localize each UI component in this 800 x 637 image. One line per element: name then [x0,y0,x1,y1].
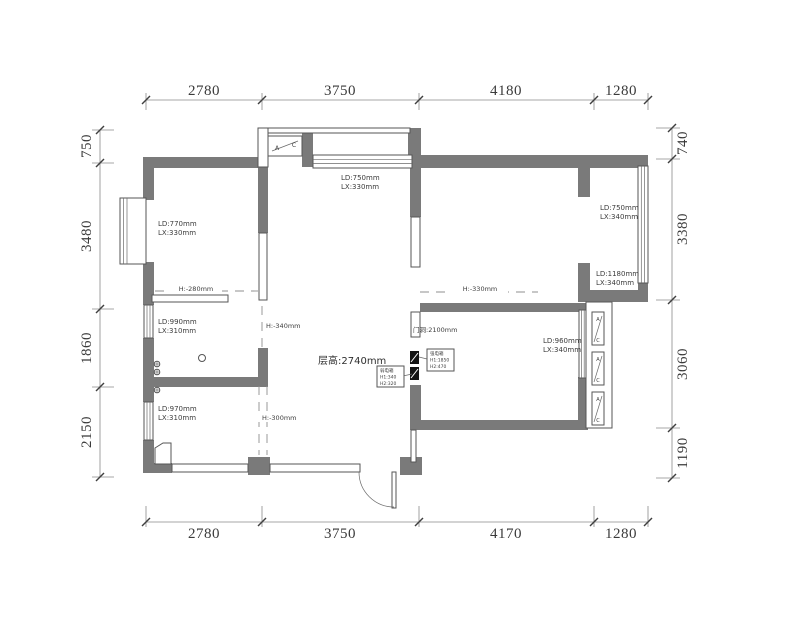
strong-box-h1: H1:1850 [430,358,449,364]
height-label-h330: H:-330mm [463,285,498,293]
ac-unit-3: A C [592,392,604,425]
svg-text:LD:970mm: LD:970mm [158,405,197,413]
electrical-boxes [410,351,419,380]
strong-box-name: 强电箱 [430,350,444,357]
svg-text:LX:330mm: LX:330mm [158,229,196,237]
room-label-bedroom: LD:960mm LX:340mm [543,337,582,354]
svg-text:LD:1180mm: LD:1180mm [596,270,639,278]
dim-bottom-1: 2780 [188,526,220,542]
svg-text:LX:340mm: LX:340mm [596,279,634,287]
dim-left-1: 750 [79,134,95,158]
floor-plan-canvas: 2780 3750 4180 1280 2780 3750 4170 1280 … [0,0,800,637]
ac-platform-right: A C A C A C [586,302,612,428]
dim-right-2: 3380 [675,213,691,245]
dimension-chain-right: 740 3380 3060 1190 [656,124,691,482]
ac-letter-a: A [596,357,600,363]
dim-top-3: 4180 [490,83,522,99]
room-label-kitchen: LD:990mm LX:310mm [158,318,197,335]
dim-bottom-3: 4170 [490,526,522,542]
height-marker-lines [155,291,538,455]
room-label-right-upper: LD:750mm LX:340mm [600,204,639,221]
dim-right-1: 740 [675,131,691,155]
plumbing-symbols [154,355,205,393]
valve-icon [154,361,160,367]
svg-text:LX:310mm: LX:310mm [158,414,196,422]
door-opening-label: 门洞:2100mm [413,325,457,334]
bay-window-left [120,198,146,264]
height-label-h300: H:-300mm [262,414,297,422]
floor-plan-drawing: 2780 3750 4180 1280 2780 3750 4170 1280 … [0,0,800,637]
ac-letter-a: A [596,317,600,323]
drain-circle-icon [199,355,206,362]
svg-text:LX:340mm: LX:340mm [600,213,638,221]
svg-text:LD:770mm: LD:770mm [158,220,197,228]
strong-box-callout: 强电箱 H1:1850 H2:470 [419,349,454,371]
weak-box-h1: H1:340 [380,375,396,381]
dim-right-3: 3060 [675,348,691,380]
weak-box-callout: 弱电箱 H1:340 H2:320 [377,366,412,387]
svg-text:LX:310mm: LX:310mm [158,327,196,335]
dim-bottom-2: 3750 [324,526,356,542]
weak-box-name: 弱电箱 [380,367,394,374]
ac-outdoor-unit-balcony: A C [268,136,302,156]
window-kitchen-left [144,305,153,338]
valve-icon [154,369,160,375]
svg-text:LD:960mm: LD:960mm [543,337,582,345]
valve-icon [154,387,160,393]
ac-letter-c: C [292,142,296,149]
ac-unit-1: A C [592,312,604,345]
dimension-chain-bottom: 2780 3750 4170 1280 [142,506,652,542]
wall-strips-white [152,217,420,472]
weak-box-h2: H2:320 [380,381,396,387]
svg-text:LD:750mm: LD:750mm [600,204,639,212]
room-label-right-lower: LD:1180mm LX:340mm [596,270,639,287]
balcony-window [313,155,412,168]
strong-box-h2: H2:470 [430,364,446,370]
ac-unit-2: A C [592,352,604,385]
dim-left-2: 3480 [79,220,95,252]
dim-left-4: 2150 [79,416,95,448]
height-label-h340: H:-340mm [266,322,301,330]
ac-letter-a: A [596,397,600,403]
door-leaf [392,472,396,508]
door-swing-arc [359,472,394,507]
dim-top-4: 1280 [605,83,637,99]
window-bath-left [144,402,153,440]
ac-letter-c: C [596,418,600,424]
svg-text:LX:340mm: LX:340mm [543,346,581,354]
bath-corner-fixture [155,443,171,464]
svg-text:LD:750mm: LD:750mm [341,174,380,182]
ceiling-height-label: 层高:2740mm [318,354,386,367]
svg-text:LD:990mm: LD:990mm [158,318,197,326]
room-label-balcony: LD:750mm LX:330mm [341,174,380,191]
room-label-top-left-bedroom: LD:770mm LX:330mm [158,220,197,237]
room-label-bath: LD:970mm LX:310mm [158,405,197,422]
balcony-structure: A C [258,128,412,168]
ac-letter-c: C [596,338,600,344]
dim-right-4: 1190 [675,437,691,468]
height-label-h280: H:-280mm [179,285,214,293]
svg-text:LX:330mm: LX:330mm [341,183,379,191]
dim-top-1: 2780 [188,83,220,99]
dimension-chain-left: 750 3480 1860 2150 [79,126,114,481]
window-right-wall [638,166,648,283]
entry-door [359,472,396,508]
dim-bottom-4: 1280 [605,526,637,542]
ac-letter-c: C [596,378,600,384]
dimension-chain-top: 2780 3750 4180 1280 [142,83,652,110]
dim-left-3: 1860 [79,332,95,364]
dim-top-2: 3750 [324,83,356,99]
